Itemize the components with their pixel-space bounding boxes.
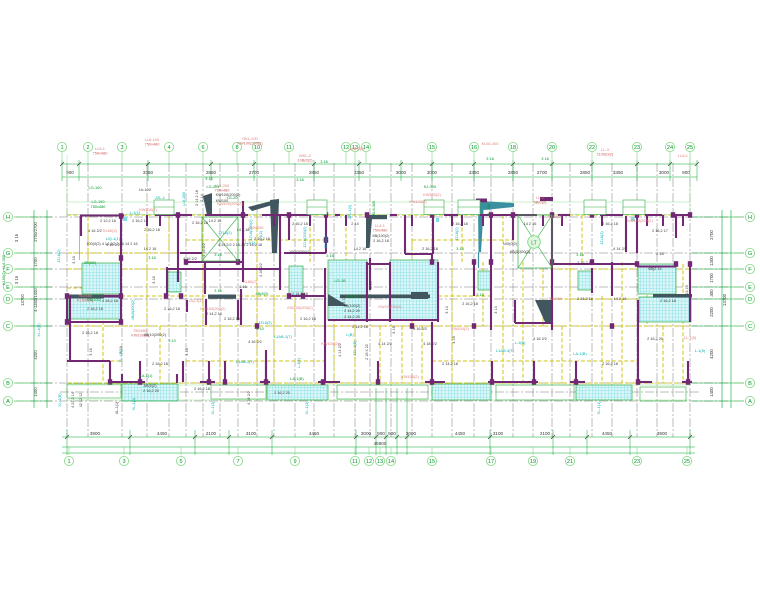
svg-text:4 18 2/2: 4 18 2/2 <box>533 337 547 341</box>
svg-text:2 14,2 20: 2 14,2 20 <box>344 315 360 319</box>
svg-text:10B(0(2): 10B(0(2) <box>297 157 313 162</box>
svg-text:E: E <box>748 285 752 291</box>
svg-text:13 14: 13 14 <box>685 285 689 295</box>
svg-text:JZL-1(1): JZL-1(1) <box>347 204 352 219</box>
svg-text:2 14: 2 14 <box>351 222 358 226</box>
svg-text:2 16,2 18: 2 16,2 18 <box>300 317 316 321</box>
svg-text:KW100(200(2): KW100(200(2) <box>287 305 313 310</box>
svg-text:JZL-1: JZL-1 <box>155 195 165 200</box>
svg-text:11: 11 <box>286 145 292 151</box>
svg-text:12: 12 <box>366 459 372 465</box>
svg-text:4-1350/1400: 4-1350/1400 <box>33 288 38 312</box>
svg-text:4 16 2/2: 4 16 2/2 <box>88 229 102 233</box>
svg-text:3 16: 3 16 <box>14 275 19 284</box>
svg-text:1400: 1400 <box>709 387 714 397</box>
svg-text:2700: 2700 <box>249 170 260 175</box>
svg-text:3 16: 3 16 <box>342 296 346 303</box>
svg-text:3 16: 3 16 <box>392 326 396 333</box>
svg-text:KL-300: KL-300 <box>487 204 491 216</box>
svg-text:KW100: KW100 <box>216 199 228 203</box>
svg-text:12: 12 <box>343 145 349 151</box>
svg-text:6B(2 14: 6B(2 14 <box>648 267 661 271</box>
svg-text:4 16 2/2: 4 16 2/2 <box>259 263 263 277</box>
svg-text:750x480: 750x480 <box>373 227 389 232</box>
svg-text:2 14,2 16: 2 14,2 16 <box>292 292 308 296</box>
svg-text:3 16: 3 16 <box>320 159 328 164</box>
svg-text:4B(8(300(2): 4B(8(300(2) <box>130 299 135 320</box>
svg-text:AB(0(2): AB(0(2) <box>143 384 157 388</box>
svg-text:17: 17 <box>488 459 494 465</box>
svg-text:2850: 2850 <box>309 170 320 175</box>
svg-text:3 16: 3 16 <box>148 255 156 260</box>
svg-text:A: A <box>6 399 10 405</box>
svg-text:2 16,2 18: 2 16,2 18 <box>292 222 308 226</box>
svg-text:3000: 3000 <box>659 170 670 175</box>
svg-text:2 16,2 18: 2 16,2 18 <box>82 331 98 335</box>
svg-text:2 16,2 17: 2 16,2 17 <box>652 229 668 233</box>
svg-text:2700: 2700 <box>537 170 548 175</box>
svg-text:13700: 13700 <box>20 294 25 306</box>
svg-text:LL6-300: LL6-300 <box>181 191 186 206</box>
svg-text:5: 5 <box>179 459 182 465</box>
svg-text:KW100(2): KW100(2) <box>401 374 419 379</box>
svg-text:KW100(2): KW100(2) <box>423 192 441 197</box>
svg-text:JZL-1(B): JZL-1(B) <box>352 340 357 356</box>
svg-text:900: 900 <box>377 431 385 436</box>
svg-text:LL-1(5): LL-1(5) <box>684 335 697 340</box>
svg-text:JZL6(2): JZL6(2) <box>323 235 328 249</box>
svg-text:2 16,2 17: 2 16,2 17 <box>577 261 593 265</box>
svg-text:3 16: 3 16 <box>326 253 334 258</box>
svg-text:2 16,2 18: 2 16,2 18 <box>132 219 148 223</box>
svg-text:2 16,2 18: 2 16,2 18 <box>164 307 180 311</box>
svg-text:XL-1(1): XL-1(1) <box>596 401 601 415</box>
svg-text:JZL6(2): JZL6(2) <box>599 231 604 245</box>
svg-text:2700: 2700 <box>709 230 714 240</box>
svg-text:2 16,2 18: 2 16,2 18 <box>87 307 103 311</box>
svg-text:4450: 4450 <box>602 431 613 436</box>
svg-text:18: 18 <box>510 145 516 151</box>
svg-text:900: 900 <box>682 170 690 175</box>
svg-text:3 16: 3 16 <box>576 252 584 257</box>
svg-text:14 2,18: 14 2,18 <box>237 228 250 232</box>
svg-text:KW100(200(2): KW100(200(2) <box>200 306 226 311</box>
svg-text:45800: 45800 <box>374 441 387 446</box>
svg-text:3100: 3100 <box>493 431 504 436</box>
svg-text:KW100(2): KW100(2) <box>451 326 469 331</box>
svg-text:3 16: 3 16 <box>452 336 456 343</box>
svg-text:L-1(1): L-1(1) <box>296 357 301 368</box>
svg-text:JZL6(2): JZL6(2) <box>218 230 232 235</box>
svg-text:7: 7 <box>236 459 239 465</box>
svg-text:14: 14 <box>388 459 394 465</box>
svg-text:KW10(200(2): KW10(200(2) <box>378 304 402 309</box>
svg-text:4200: 4200 <box>709 349 714 359</box>
svg-text:2850: 2850 <box>508 170 519 175</box>
svg-text:2 14,2 20: 2 14,2 20 <box>344 309 360 313</box>
svg-text:KW100(200(2): KW100(200(2) <box>237 140 263 145</box>
svg-text:2 16,2 18: 2 16,2 18 <box>192 221 208 225</box>
svg-text:6: 6 <box>201 145 204 151</box>
svg-text:14 2 16: 14 2 16 <box>524 222 537 226</box>
svg-text:6B(0(2): 6B(0(2) <box>534 199 548 204</box>
svg-text:13700: 13700 <box>722 293 727 306</box>
svg-text:2 16,2 18: 2 16,2 18 <box>660 299 676 303</box>
svg-text:6B(0(200(2): 6B(0(200(2) <box>510 250 531 254</box>
svg-text:4450: 4450 <box>157 431 168 436</box>
svg-text:JZL6(200(2): JZL6(200(2) <box>302 226 307 248</box>
svg-text:2 16,2 18: 2 16,2 18 <box>577 297 593 301</box>
svg-text:2850: 2850 <box>580 170 591 175</box>
svg-text:4 18 2/2: 4 18 2/2 <box>423 342 437 346</box>
svg-text:3000: 3000 <box>396 170 407 175</box>
svg-text:JZL6(2): JZL6(2) <box>454 227 459 241</box>
svg-text:300: 300 <box>709 289 714 297</box>
svg-text:100(0(2) 4 14 2/2 2 16 14 2 16: 100(0(2) 4 14 2/2 2 16 14 2 16 <box>86 242 137 246</box>
svg-text:2 16 4 22: 2 16 4 22 <box>365 344 369 360</box>
svg-text:H: H <box>748 215 752 221</box>
svg-text:3: 3 <box>122 459 125 465</box>
svg-text:100(0(2): 100(0(2) <box>503 242 518 246</box>
svg-text:3000: 3000 <box>361 431 372 436</box>
svg-text:4 18 2/2: 4 18 2/2 <box>247 391 251 405</box>
svg-text:UQ-1(1): UQ-1(1) <box>106 236 121 241</box>
svg-text:3 16: 3 16 <box>119 346 123 353</box>
svg-text:2850: 2850 <box>206 170 217 175</box>
svg-text:1700: 1700 <box>709 273 714 283</box>
svg-text:23: 23 <box>634 459 640 465</box>
svg-text:2 16,2 18: 2 16,2 18 <box>422 247 438 251</box>
svg-text:11: 11 <box>352 459 358 465</box>
svg-text:19: 19 <box>530 459 536 465</box>
svg-text:14 2 16: 14 2 16 <box>144 247 157 251</box>
svg-text:1700: 1700 <box>33 257 38 267</box>
svg-text:C: C <box>6 324 10 330</box>
svg-text:3 16: 3 16 <box>296 177 304 182</box>
svg-text:UQ-1(1): UQ-1(1) <box>189 298 204 303</box>
svg-text:14 2 16: 14 2 16 <box>354 247 367 251</box>
svg-text:JZL6(2): JZL6(2) <box>258 320 272 325</box>
svg-text:2 16,2 18: 2 16,2 18 <box>152 362 168 366</box>
svg-text:G: G <box>6 251 10 257</box>
svg-text:A: A <box>748 399 752 405</box>
svg-text:L(B): L(B) <box>346 332 354 337</box>
svg-text:2 12,2 16: 2 12,2 16 <box>100 219 116 223</box>
svg-text:2 14 2 18: 2 14 2 18 <box>195 190 199 206</box>
svg-text:3 16: 3 16 <box>14 233 19 242</box>
svg-text:JZL6(2): JZL6(2) <box>56 249 61 263</box>
svg-text:2 16,2 18: 2 16,2 18 <box>462 302 478 306</box>
svg-text:3350: 3350 <box>354 170 365 175</box>
svg-text:3000: 3000 <box>406 431 417 436</box>
svg-text:750x480: 750x480 <box>91 204 107 209</box>
svg-text:2 16: 2 16 <box>656 252 663 256</box>
svg-text:42 12 12: 42 12 12 <box>79 393 83 408</box>
svg-text:L-1(B): L-1(B) <box>515 340 527 345</box>
svg-text:LG-1B: LG-1B <box>334 278 346 283</box>
svg-text:2 16,2 18: 2 16,2 18 <box>602 222 618 226</box>
svg-text:KW100(2): KW100(2) <box>139 207 157 212</box>
svg-text:KL60(2): KL60(2) <box>103 228 118 233</box>
svg-text:2B(0B): 2B(0B) <box>84 260 97 265</box>
svg-text:3 16: 3 16 <box>541 156 549 161</box>
svg-text:LT: LT <box>531 241 536 247</box>
svg-text:XL-1(1): XL-1(1) <box>210 401 215 415</box>
svg-text:6B(100(2): 6B(100(2) <box>373 234 391 238</box>
svg-text:750x480: 750x480 <box>93 150 109 155</box>
svg-text:100(0(200(2): 100(0(200(2) <box>289 250 312 254</box>
svg-text:L-1(5): L-1(5) <box>695 348 706 353</box>
svg-text:3 16: 3 16 <box>205 176 213 181</box>
svg-text:3 14: 3 14 <box>494 306 498 313</box>
svg-text:4200: 4200 <box>33 350 38 360</box>
svg-text:10B(0(2): 10B(0(2) <box>349 146 365 151</box>
svg-text:KL6-300: KL6-300 <box>372 201 376 215</box>
svg-text:3350: 3350 <box>613 170 624 175</box>
svg-text:2100: 2100 <box>540 431 551 436</box>
svg-text:1: 1 <box>60 145 63 151</box>
svg-text:13: 13 <box>377 459 383 465</box>
svg-text:B 14: B 14 <box>369 281 373 289</box>
svg-text:LG-100: LG-100 <box>89 185 103 190</box>
svg-text:4 14 2/2: 4 14 2/2 <box>613 247 627 251</box>
svg-text:4 14 2/2 2 16,14 2 16,2 18: 4 14 2/2 2 16,14 2 16,2 18 <box>218 243 262 247</box>
svg-text:L1AB-1(T): L1AB-1(T) <box>236 359 255 364</box>
svg-text:3350: 3350 <box>143 170 154 175</box>
svg-text:KJ-300: KJ-300 <box>424 184 437 189</box>
svg-text:2 16,2 20: 2 16,2 20 <box>647 337 663 341</box>
svg-text:LL6-300: LL6-300 <box>2 255 6 269</box>
svg-text:F: F <box>6 267 10 273</box>
svg-text:B: B <box>748 381 752 387</box>
svg-text:900: 900 <box>388 431 396 436</box>
svg-text:4 16,2 18: 4 16,2 18 <box>102 299 118 303</box>
svg-text:2 16,2 18: 2 16,2 18 <box>224 317 240 321</box>
svg-text:2200: 2200 <box>709 307 714 317</box>
svg-text:3 14: 3 14 <box>476 292 484 297</box>
svg-text:14 2 16: 14 2 16 <box>614 297 627 301</box>
svg-text:KL60-300: KL60-300 <box>482 141 500 146</box>
svg-text:XL-1(1): XL-1(1) <box>115 401 119 414</box>
svg-text:SB(100): SB(100) <box>87 297 102 302</box>
svg-text:KW100(2): KW100(2) <box>321 341 339 346</box>
svg-text:B: B <box>6 381 10 387</box>
svg-text:3 16: 3 16 <box>152 276 156 283</box>
svg-text:23: 23 <box>634 145 640 151</box>
svg-text:4 16 2/2: 4 16 2/2 <box>248 340 262 344</box>
svg-text:1300: 1300 <box>709 256 714 266</box>
svg-text:86(10(200(2): 86(10(200(2) <box>144 333 167 337</box>
svg-text:4B(8(2): 4B(8(2) <box>256 291 270 296</box>
svg-text:900: 900 <box>66 170 74 175</box>
svg-text:2 14,2 18: 2 14,2 18 <box>352 325 368 329</box>
svg-text:XL-1(1): XL-1(1) <box>131 397 136 411</box>
svg-text:2 14: 2 14 <box>200 194 204 201</box>
svg-text:2 14,2 16: 2 14,2 16 <box>206 312 222 316</box>
svg-text:KL60(2): KL60(2) <box>2 271 6 285</box>
svg-text:XL-1(1): XL-1(1) <box>304 401 309 415</box>
svg-text:3350: 3350 <box>469 170 480 175</box>
svg-text:KL60(2): KL60(2) <box>243 279 258 284</box>
svg-text:2 16,2 18: 2 16,2 18 <box>144 228 160 232</box>
svg-text:1400: 1400 <box>33 387 38 397</box>
svg-text:3: 3 <box>120 145 123 151</box>
svg-text:C: C <box>748 324 752 330</box>
svg-text:25: 25 <box>687 145 693 151</box>
svg-text:XL-4(B): XL-4(B) <box>36 323 41 337</box>
svg-text:3 16: 3 16 <box>89 348 93 355</box>
svg-text:3 16: 3 16 <box>72 256 76 263</box>
svg-text:2100: 2100 <box>206 431 217 436</box>
svg-text:8: 8 <box>235 145 238 151</box>
svg-text:2700/2700: 2700/2700 <box>33 221 38 241</box>
svg-text:750/480: 750/480 <box>548 296 563 301</box>
svg-text:LL6-1: LL6-1 <box>678 153 688 158</box>
svg-text:3 14: 3 14 <box>445 306 449 313</box>
svg-text:3 14: 3 14 <box>456 246 464 251</box>
svg-text:4 16 2/2: 4 16 2/2 <box>413 327 427 331</box>
svg-text:KW100(200(2): KW100(200(2) <box>627 218 653 223</box>
svg-text:25: 25 <box>684 459 690 465</box>
svg-text:2 16,2 18: 2 16,2 18 <box>194 387 210 391</box>
svg-text:20: 20 <box>549 145 555 151</box>
svg-text:4 16 2/2: 4 16 2/2 <box>202 243 206 257</box>
svg-text:4 22 2 14: 4 22 2 14 <box>71 392 75 408</box>
svg-text:LA-1(1): LA-1(1) <box>140 373 154 378</box>
svg-text:KW100(200(2): KW100(200(2) <box>216 193 241 197</box>
svg-text:4 14 2/2: 4 14 2/2 <box>338 343 342 357</box>
svg-text:2 16,2 18: 2 16,2 18 <box>373 239 389 243</box>
svg-text:SB(100): SB(100) <box>345 294 360 299</box>
svg-text:3 16: 3 16 <box>214 252 222 257</box>
svg-text:2 16,2 18: 2 16,2 18 <box>254 237 270 241</box>
svg-text:2 16,2 20: 2 16,2 20 <box>274 391 290 395</box>
svg-text:E: E <box>6 285 10 291</box>
svg-text:3900: 3900 <box>657 431 668 436</box>
svg-text:15: 15 <box>429 145 435 151</box>
svg-text:XL-1(B): XL-1(B) <box>57 393 62 407</box>
svg-text:G: G <box>748 251 752 257</box>
svg-text:9: 9 <box>293 459 296 465</box>
svg-text:2: 2 <box>86 145 89 151</box>
svg-text:3 16: 3 16 <box>214 288 222 293</box>
svg-text:F: F <box>748 267 752 273</box>
svg-text:2 16,2 18: 2 16,2 18 <box>452 222 468 226</box>
svg-text:Lb-100: Lb-100 <box>139 188 151 192</box>
svg-text:L1AB-1(T): L1AB-1(T) <box>274 334 293 339</box>
svg-text:24: 24 <box>667 145 673 151</box>
svg-text:4 14 2/2: 4 14 2/2 <box>378 342 392 346</box>
svg-text:3 16: 3 16 <box>185 348 189 355</box>
svg-text:KL60(2): KL60(2) <box>548 214 563 219</box>
svg-text:10: 10 <box>254 145 260 151</box>
svg-text:2 16,2 20: 2 16,2 20 <box>143 389 159 393</box>
svg-text:LG-201: LG-201 <box>207 184 220 189</box>
svg-text:21: 21 <box>567 459 573 465</box>
svg-text:D: D <box>6 297 10 303</box>
svg-text:3900: 3900 <box>90 431 101 436</box>
svg-text:3100: 3100 <box>246 431 257 436</box>
svg-text:2 16,2 18: 2 16,2 18 <box>602 362 618 366</box>
svg-text:4450: 4450 <box>309 431 320 436</box>
svg-text:L-1(1): L-1(1) <box>130 210 141 215</box>
svg-text:3 10: 3 10 <box>168 338 176 343</box>
svg-text:16: 16 <box>471 145 477 151</box>
svg-text:750x480: 750x480 <box>145 141 161 146</box>
svg-text:2 14,2 18: 2 14,2 18 <box>442 362 458 366</box>
svg-text:H: H <box>6 215 10 221</box>
svg-text:4450: 4450 <box>455 431 466 436</box>
svg-text:1100(0(2): 1100(0(2) <box>597 151 614 156</box>
svg-text:4B(100(2): 4B(100(2) <box>344 304 362 308</box>
svg-text:3000: 3000 <box>427 170 438 175</box>
svg-text:22: 22 <box>589 145 595 151</box>
svg-text:LA-1(B): LA-1(B) <box>573 351 587 356</box>
svg-text:15: 15 <box>429 459 435 465</box>
svg-text:L1AB-4(T): L1AB-4(T) <box>496 348 515 353</box>
svg-text:LA-1(B): LA-1(B) <box>290 376 304 381</box>
svg-text:D: D <box>748 297 752 303</box>
svg-text:1: 1 <box>67 459 70 465</box>
svg-text:1 16: 1 16 <box>239 285 246 289</box>
svg-text:3 16: 3 16 <box>486 156 494 161</box>
svg-text:KW100(2): KW100(2) <box>409 199 427 204</box>
svg-text:4: 4 <box>167 145 170 151</box>
svg-text:14 2 16: 14 2 16 <box>209 219 222 223</box>
svg-text:3 10: 3 10 <box>256 326 264 331</box>
svg-text:4 16 2/2: 4 16 2/2 <box>183 257 197 261</box>
